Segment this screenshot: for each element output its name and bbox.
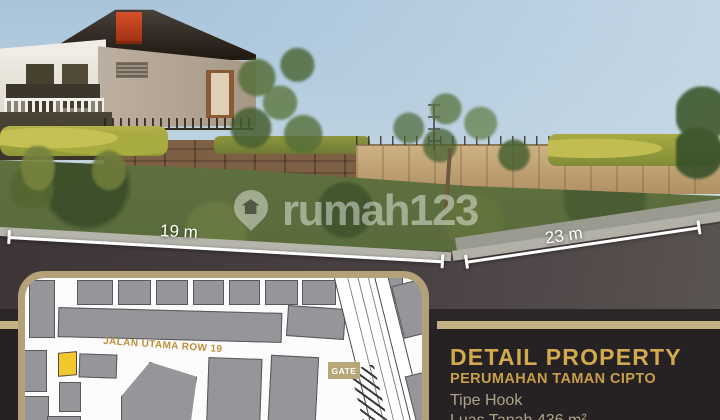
map-block [229,280,260,305]
map-block [29,280,55,338]
map-block [79,353,118,378]
small-tree [490,136,538,184]
accent-stripe-right [437,321,720,329]
map-block [25,350,47,392]
house-glyph-icon [242,199,260,214]
property-type: Tipe Hook [450,392,522,410]
development-name: PERUMAHAN TAMAN CIPTO [450,371,656,387]
rooftop-water-tank [116,12,142,44]
map-block [58,307,283,343]
land-area-line: Luas Tanah 436 m² [450,412,587,420]
watermark-brand: rumah123 [282,189,478,233]
site-map: JALAN UTAMA ROW 19 GATE [25,278,422,420]
gate-badge: GATE [328,362,360,379]
highlighted-plot [58,351,77,377]
house-vent [116,62,148,78]
palm-shrub [8,146,68,208]
detail-title: DETAIL PROPERTY [450,344,682,371]
site-map-panel: JALAN UTAMA ROW 19 GATE [18,271,429,420]
map-block [156,280,188,305]
right-edge-tree [676,86,720,198]
tree [222,46,338,172]
land-photo: rumah123 19 m 23 m [0,0,720,309]
map-block [77,280,113,305]
map-block [118,280,151,305]
map-block [286,305,346,340]
map-block [121,362,197,420]
map-block [59,382,81,412]
map-block [206,357,263,420]
map-block [25,396,49,420]
map-block [193,280,224,305]
property-listing-image: rumah123 19 m 23 m DETAIL PROPERTY PERUM… [0,0,720,420]
map-block [47,416,81,420]
palm-shrub [80,148,138,204]
balcony-opening [6,84,100,99]
front-measure-label: 19 m [160,221,199,243]
map-block [302,280,336,305]
map-block [265,280,298,305]
map-block [267,355,319,420]
